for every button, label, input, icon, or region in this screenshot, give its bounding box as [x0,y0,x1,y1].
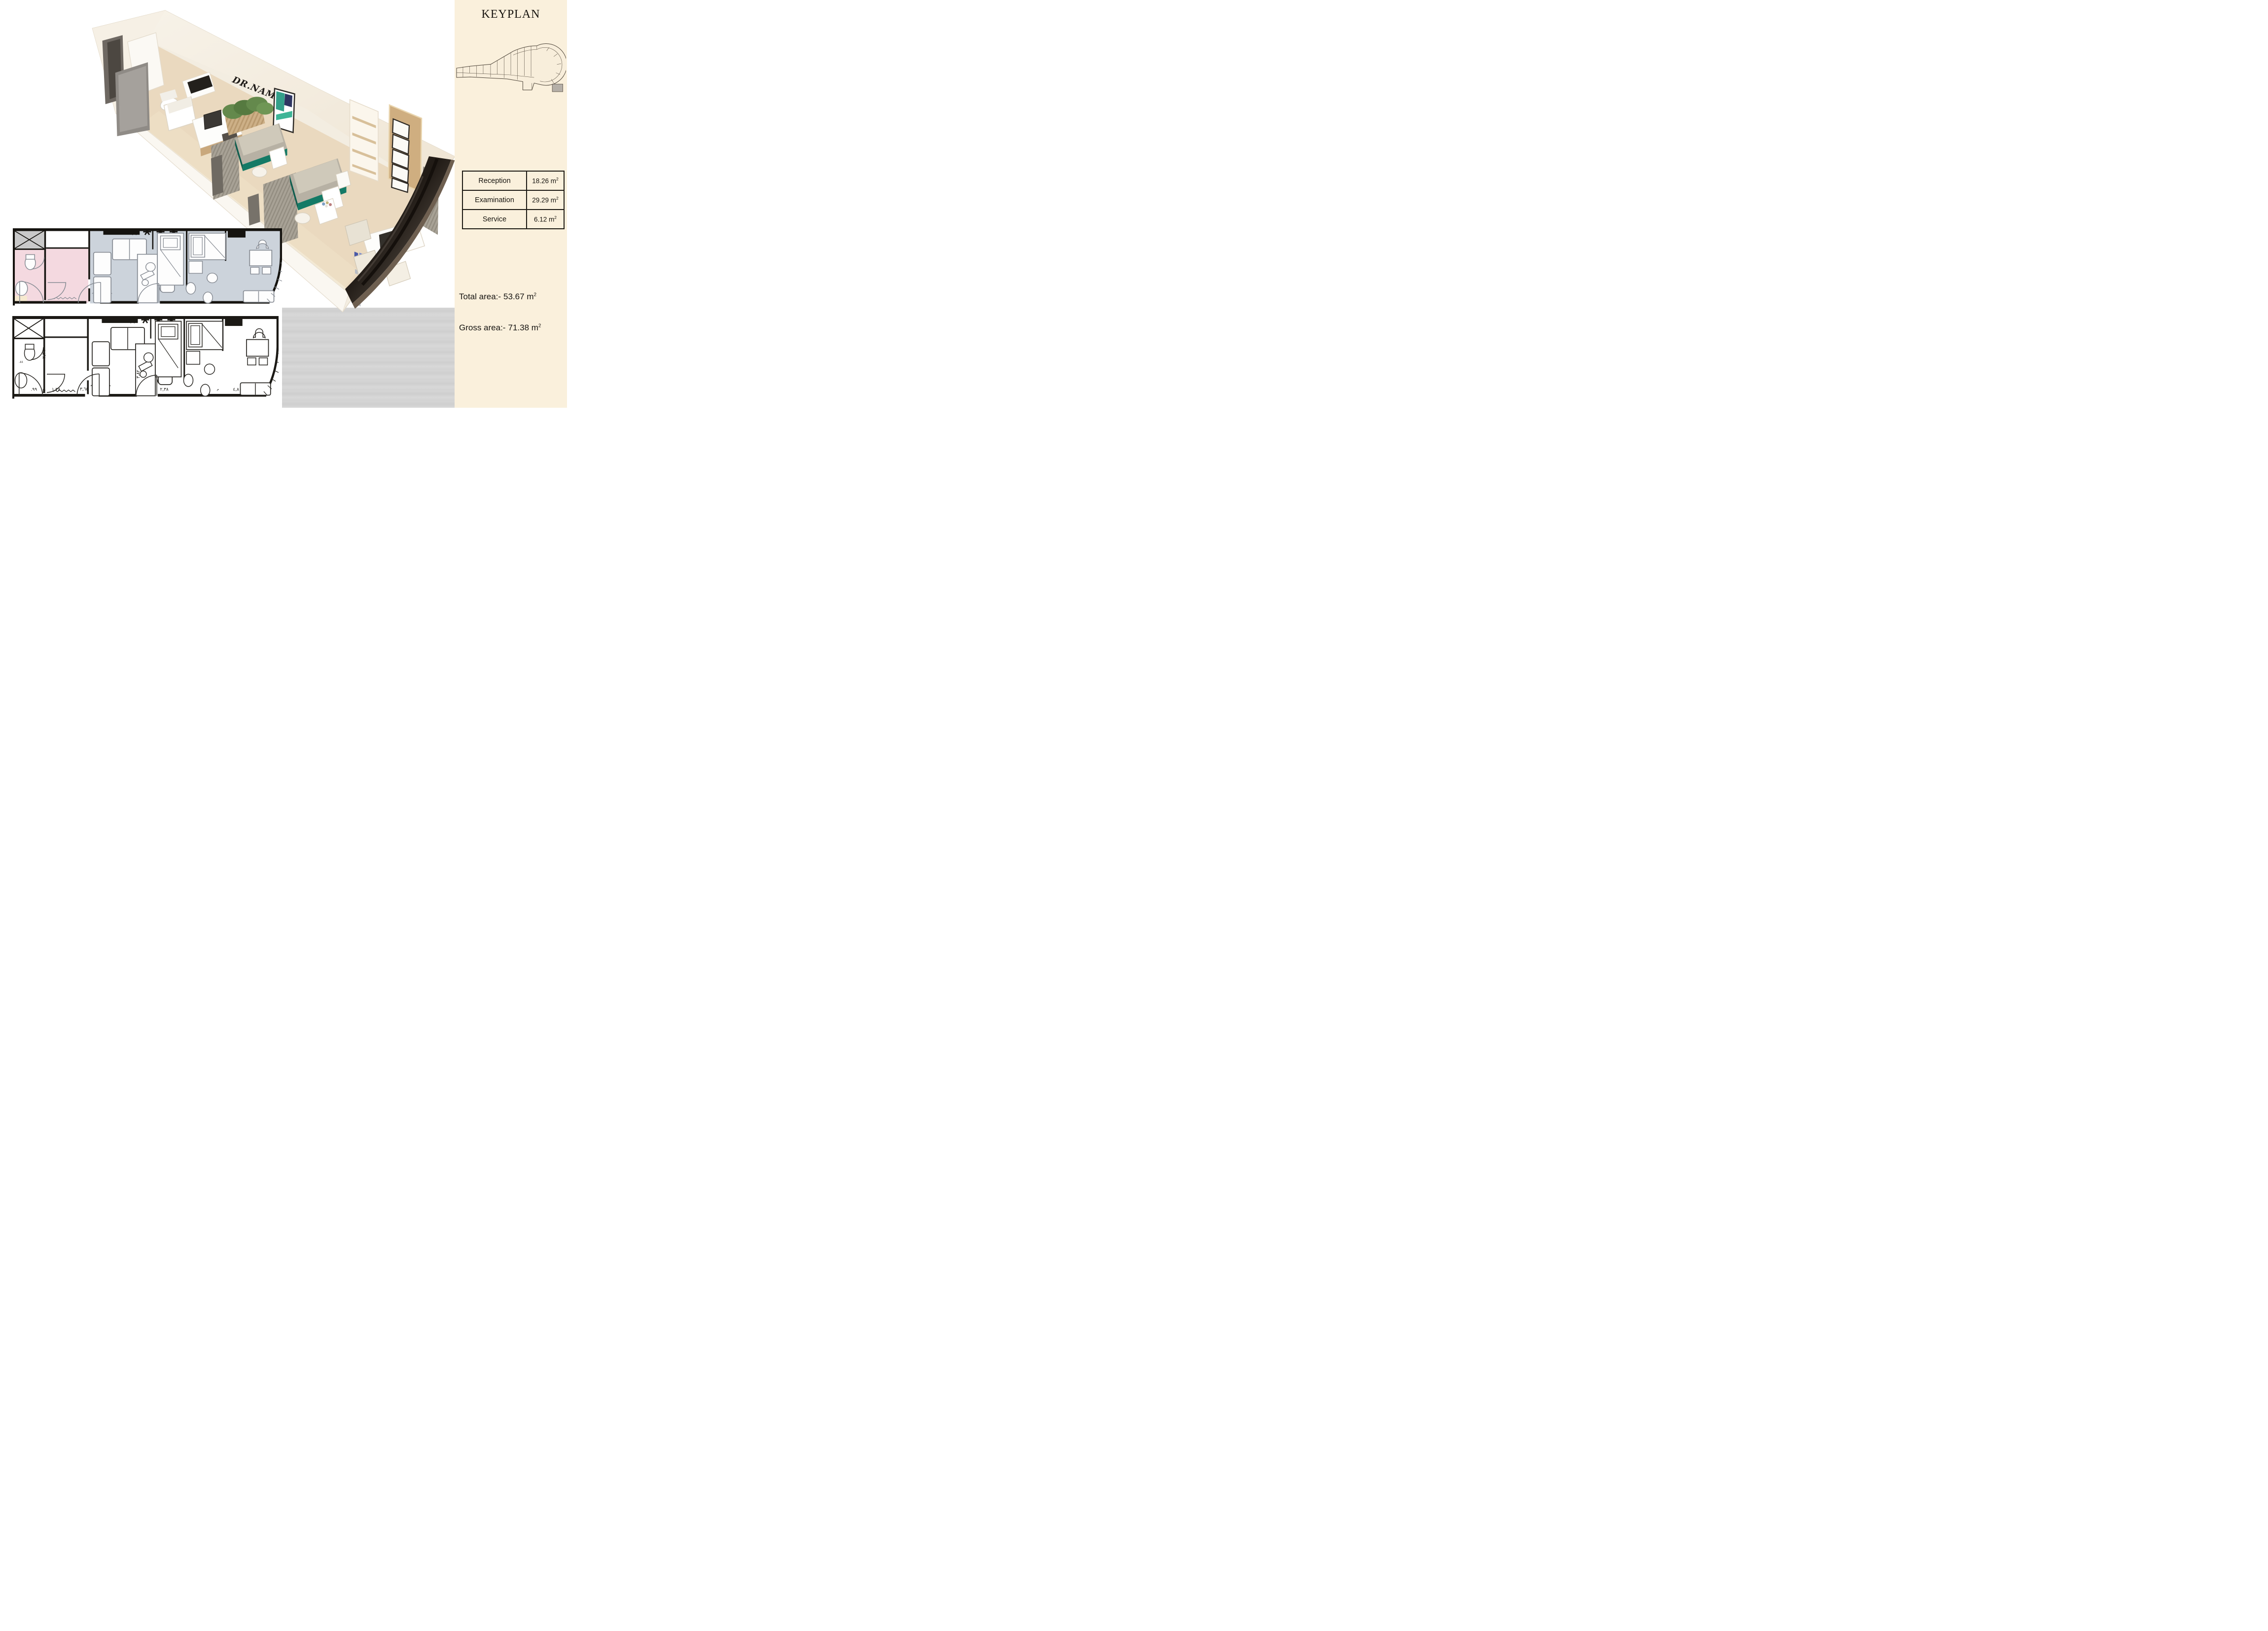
stool-1 [252,167,267,177]
svg-text:٢,٣٨: ٢,٣٨ [160,388,169,392]
svg-text:٢,٣٩: ٢,٣٩ [42,350,47,359]
table-row-reception: Reception 18.26 m2 [462,171,564,190]
svg-text:٤,٨٠: ٤,٨٠ [233,388,242,392]
area-table: Reception 18.26 m2 Examination 29.29 m2 … [462,171,565,229]
svg-text:م: م [217,387,219,391]
table-row-service: Service 6.12 m2 [462,210,564,229]
certificate-panel [389,105,422,192]
room-area: 6.12 m2 [527,210,564,229]
stool-2 [295,213,310,224]
room-area: 29.29 m2 [527,190,564,210]
svg-text:١,٣٢: ١,٣٢ [42,389,47,397]
gross-area: Gross area:-71.38 m2 [459,323,567,333]
floor-plan-dimensioned: ٢,٣٩ .٤٤ .٩٩ ١,٣٨ ٣,٦٥ ٢,٣٨ م ٤,٨٠ ٣,٨٢ … [12,316,279,399]
svg-text:٣,٦٥: ٣,٦٥ [80,387,89,392]
room-area: 18.26 m2 [527,171,564,190]
floor-plan-colored [13,228,282,306]
room-label: Reception [462,171,527,190]
svg-text:.٤٤: .٤٤ [19,360,23,364]
table-row-examination: Examination 29.29 m2 [462,190,564,210]
keyplan-title: KEYPLAN [455,8,567,21]
svg-text:١,٣٨: ١,٣٨ [52,388,61,392]
clinic-brochure-page: DR.NAME [0,0,567,408]
room-label: Service [462,210,527,229]
info-sidebar: KEYPLAN [455,0,567,408]
room-label: Examination [462,190,527,210]
total-area: Total area:-53.67 m2 [459,292,567,302]
keyplan-map [456,29,566,94]
scan-artifact-band [282,308,455,408]
svg-text:٣,٨٢: ٣,٨٢ [136,370,141,379]
svg-text:.٩٩: .٩٩ [31,388,37,392]
